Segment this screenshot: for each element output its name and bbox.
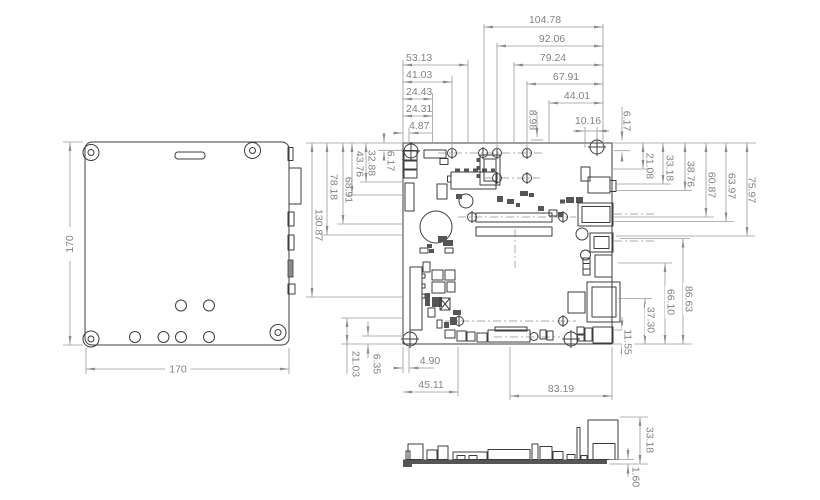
usb-port [595, 255, 612, 277]
dim-label: 6.17 [385, 151, 397, 172]
dim-label: 44.01 [564, 90, 590, 102]
dim-label: 67.91 [553, 71, 579, 83]
dim-group-top-mid: 8.98 10.16 6.17 [527, 107, 633, 159]
enclosure-outline [85, 142, 289, 345]
dim-enclosure-height: 170 [64, 235, 76, 253]
coin-battery [420, 211, 452, 243]
enclosure-vent-slot [175, 152, 205, 159]
side-view-dimensions: 33.18 1.60 [609, 417, 656, 487]
dim-label: 68.91 [343, 177, 355, 203]
enclosure-bottom-holes [130, 300, 215, 343]
dim-label: 60.87 [706, 172, 718, 198]
pcb-side-view: 33.18 1.60 [403, 417, 656, 487]
audio-jack-barrel [610, 181, 616, 192]
dim-label: 63.97 [726, 173, 738, 199]
dim-label: 6.35 [371, 354, 383, 375]
dim-label: 86.63 [683, 286, 695, 312]
dim-label: 53.13 [406, 52, 432, 64]
left-edge-connectors [404, 151, 425, 331]
dim-label: 79.24 [540, 52, 566, 64]
dim-chain-top-left: 53.13 41.03 24.43 24.31 4.87 [395, 52, 468, 149]
dim-label: 4.87 [409, 120, 430, 132]
dim-label: 10.16 [575, 115, 601, 127]
dim-group-bottom-left: 21.03 6.35 [341, 318, 404, 377]
audio-jack [588, 177, 610, 193]
dim-label: 104.78 [529, 14, 561, 26]
dim-chain-bottom: 4.90 45.11 83.19 [394, 347, 612, 400]
technical-drawing-sheet: 170 170 [0, 0, 820, 500]
enclosure-screw-holes [83, 143, 286, 348]
dim-label: 24.31 [406, 103, 432, 115]
pcb-top-view [401, 138, 656, 348]
top-area-components [424, 150, 590, 217]
dim-label: 66.10 [665, 289, 677, 315]
dim-chain-right-lower: 11.55 37.30 66.10 86.63 [612, 239, 695, 359]
dim-label: 45.11 [418, 379, 444, 391]
dim-label: 8.98 [527, 110, 539, 131]
memory-slots [476, 213, 552, 236]
right-edge-connectors [560, 177, 656, 322]
dim-label: 43.76 [354, 151, 366, 177]
dim-label: 4.90 [420, 355, 441, 367]
dim-label: 78.18 [328, 174, 340, 200]
enclosure-bottom-view: 170 170 [62, 142, 301, 376]
dim-chain-right-upper: 21.08 33.18 38.76 60.87 63.97 75.97 [612, 143, 758, 236]
video-port [590, 233, 613, 252]
dim-label: 1.60 [630, 467, 642, 488]
dim-enclosure-width: 170 [169, 364, 187, 376]
pcb-dimension-drawing: 170 170 [0, 0, 820, 500]
dim-label: 11.55 [622, 329, 634, 355]
front-panel-header [488, 330, 530, 342]
enclosure-side-connector-cutouts [288, 148, 301, 295]
pcb-standoff-holes [438, 147, 576, 337]
enclosure-dimensions: 170 170 [62, 142, 289, 376]
dim-label: 38.76 [685, 161, 697, 187]
dim-label: 75.97 [746, 177, 758, 203]
pcb-side-board [403, 460, 607, 465]
smd-component-cluster [420, 240, 461, 328]
dim-label: 24.43 [406, 86, 432, 98]
bottom-edge-connectors [445, 327, 613, 343]
dim-label: 92.06 [539, 33, 565, 45]
dim-label: 37.30 [645, 307, 657, 333]
dim-label: 33.18 [644, 427, 656, 453]
dim-label: 33.18 [664, 155, 676, 181]
side-view-components [406, 420, 618, 460]
dim-label: 6.17 [621, 111, 633, 132]
dim-chain-left: 130.87 78.18 68.91 43.76 32.88 6.17 [306, 133, 403, 297]
dim-label: 83.19 [548, 383, 574, 395]
dim-label: 41.03 [406, 69, 432, 81]
dim-label: 130.87 [313, 209, 325, 241]
dim-label: 32.88 [366, 150, 378, 176]
dim-label: 21.08 [644, 153, 656, 179]
dim-label: 21.03 [350, 351, 362, 377]
